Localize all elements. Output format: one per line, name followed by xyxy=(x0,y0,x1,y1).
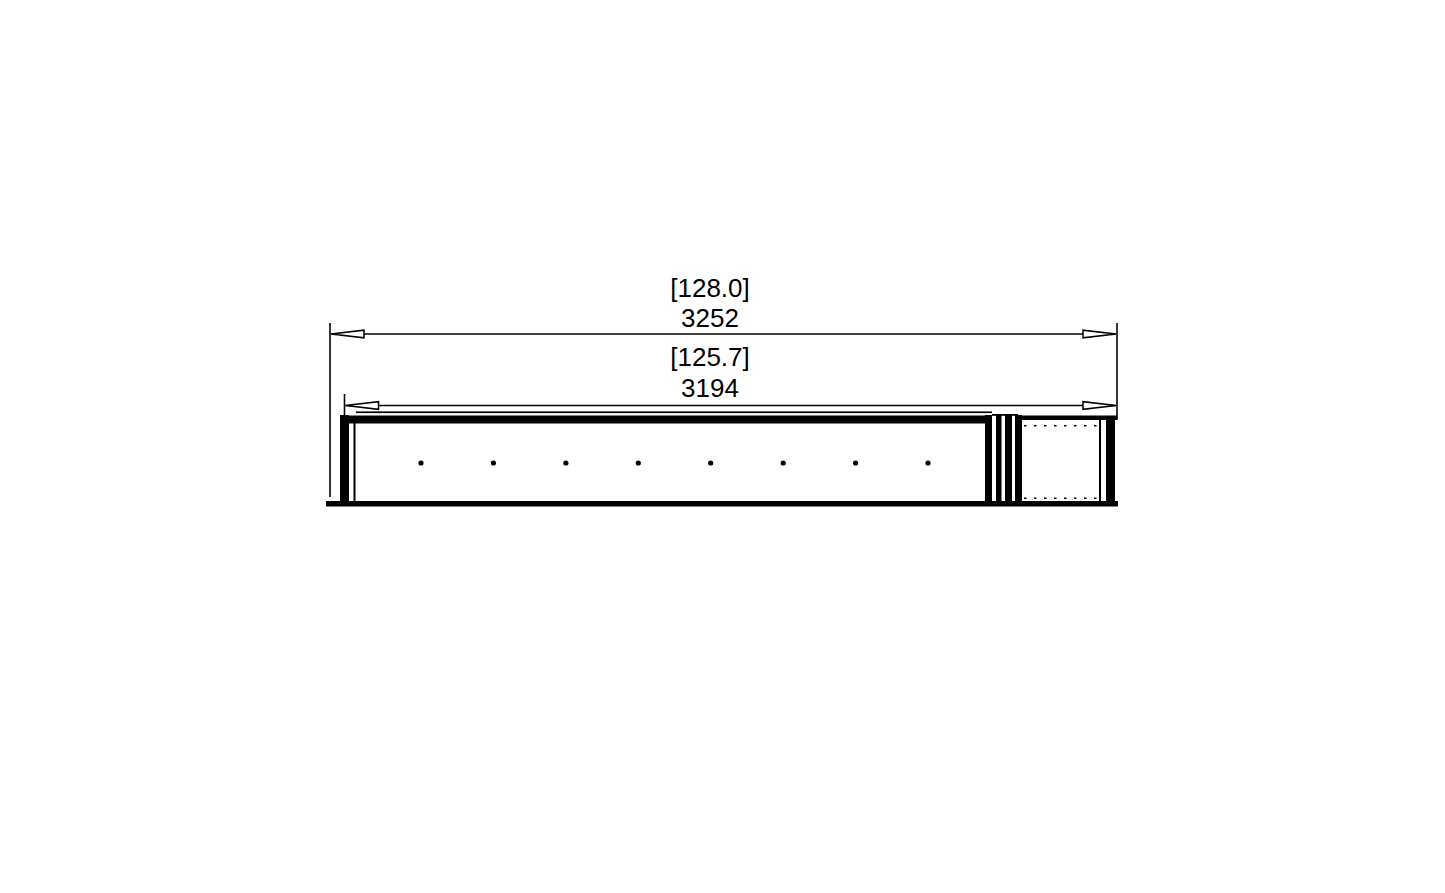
burner-port-dot xyxy=(708,460,713,465)
burner-body xyxy=(326,411,1118,506)
end-section-right-edge xyxy=(1106,417,1115,503)
firebox-left-edge xyxy=(340,415,349,505)
burner-port-dot xyxy=(491,460,496,465)
divider-bar-1 xyxy=(996,415,1002,503)
burner-port-dot xyxy=(563,460,568,465)
dimension-burner: [125.7] 3194 xyxy=(345,342,1117,416)
dimension-drawing: [128.0] 3252 [125.7] 3194 xyxy=(0,0,1445,893)
burner-port-dot xyxy=(781,460,786,465)
dimension-burner-metric-label: 3194 xyxy=(681,373,739,403)
burner-port-dot xyxy=(418,460,423,465)
firebox-top-edge xyxy=(349,416,992,424)
divider-bar-2 xyxy=(1005,415,1012,503)
dimension-burner-imperial-label: [125.7] xyxy=(670,342,750,372)
page: { "page": { "background_color": "#ffffff… xyxy=(0,0,1445,893)
dimension-overall-metric-label: 3252 xyxy=(681,303,739,333)
dimension-overall-arrow-right-icon xyxy=(1083,330,1116,338)
dimension-overall-imperial-label: [128.0] xyxy=(670,273,750,303)
end-section-left-edge xyxy=(1015,415,1022,503)
firebox-left-inner-line xyxy=(354,416,356,504)
end-section-inner-line xyxy=(1099,420,1101,501)
dimension-overall-arrow-left-icon xyxy=(331,330,364,338)
end-section-top-edge xyxy=(1015,416,1118,421)
burner-ports xyxy=(418,460,930,465)
dimension-burner-arrow-right-icon xyxy=(1083,402,1116,410)
firebox-right-edge xyxy=(985,415,992,503)
burner-port-dot xyxy=(853,460,858,465)
firebox-top-lip-line xyxy=(356,411,992,413)
dimension-burner-arrow-left-icon xyxy=(346,402,379,410)
technical-drawing-canvas: [128.0] 3252 [125.7] 3194 xyxy=(0,0,1445,893)
burner-port-dot xyxy=(925,460,930,465)
burner-port-dot xyxy=(636,460,641,465)
